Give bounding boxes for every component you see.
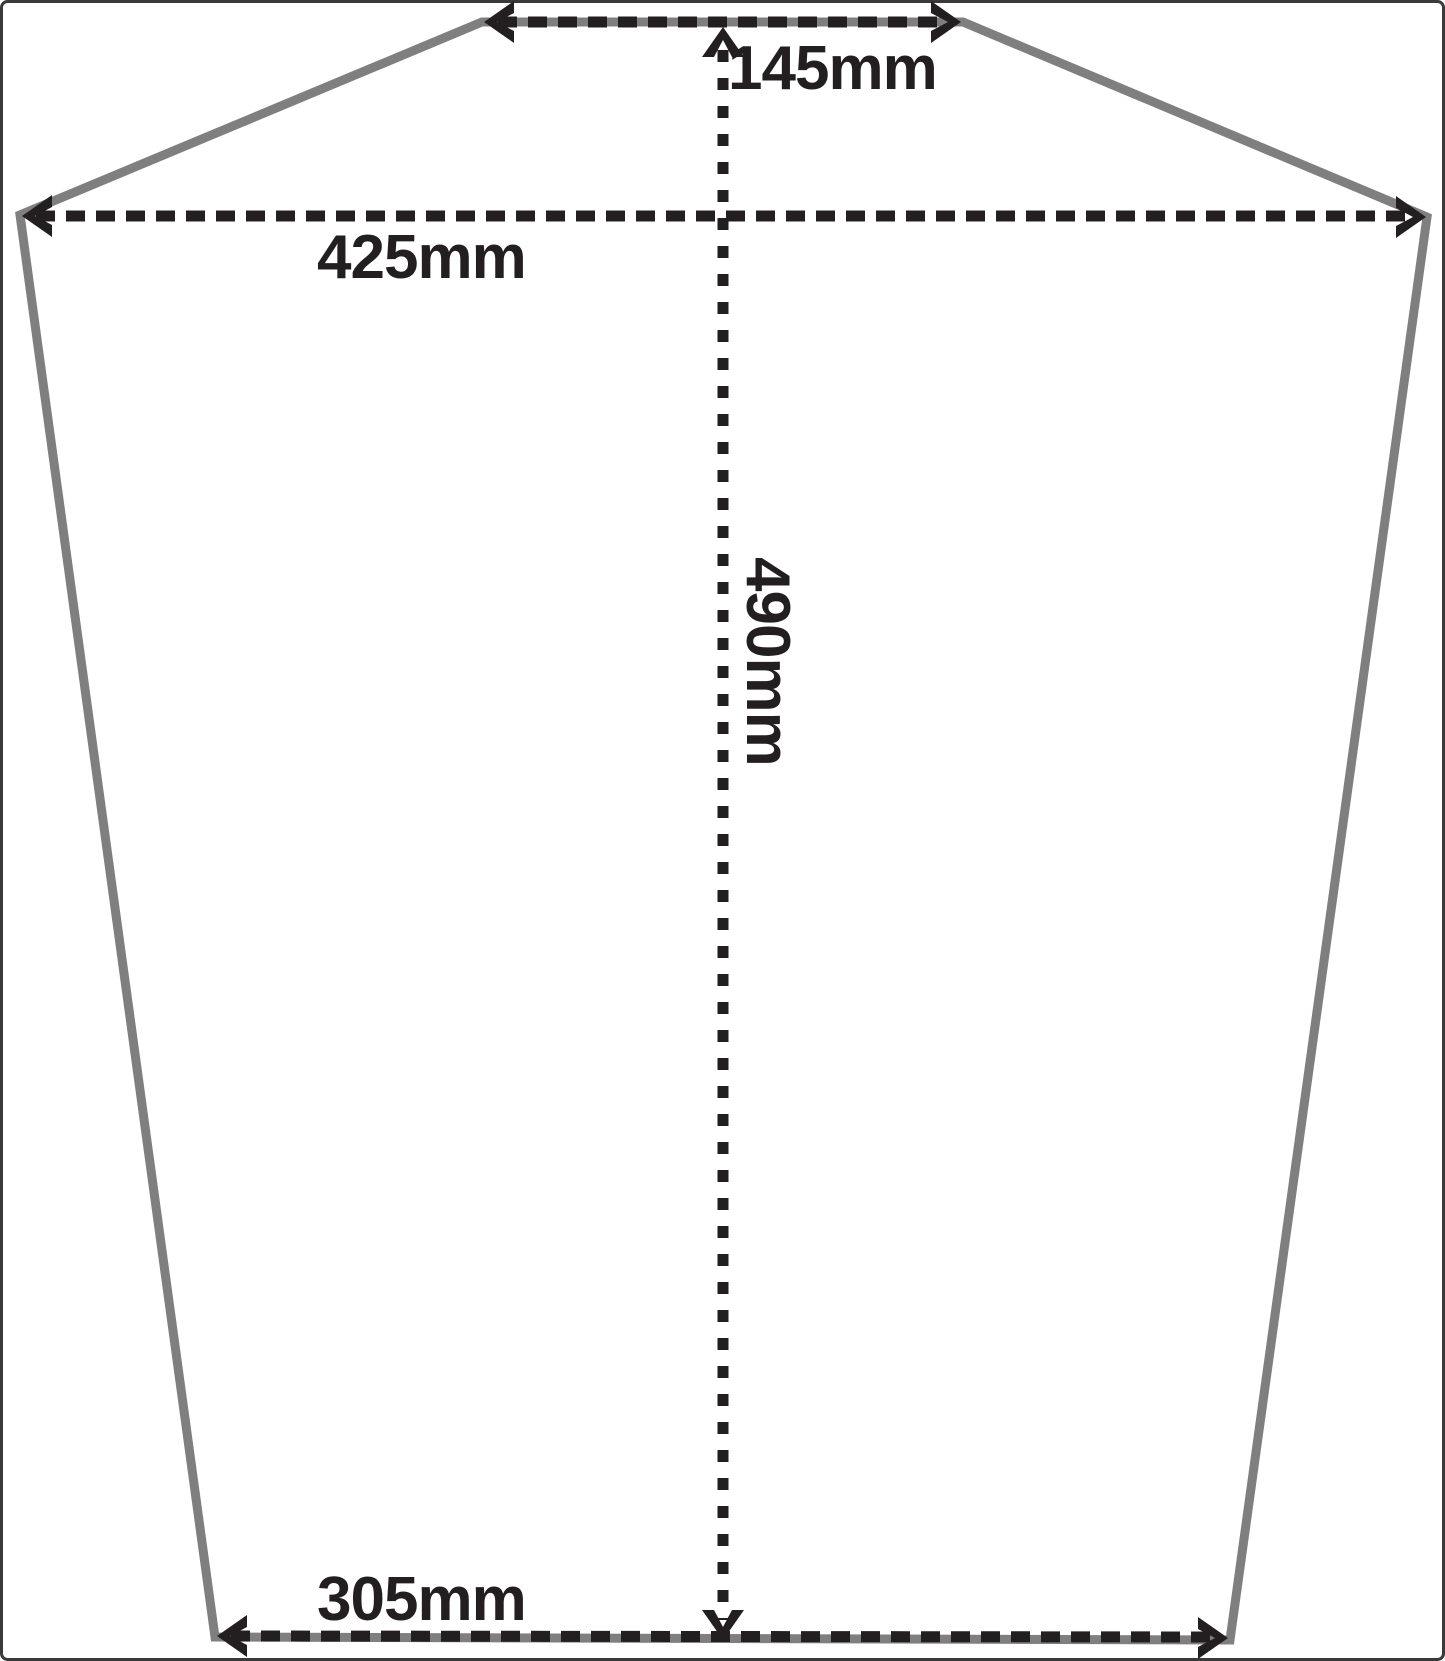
dimension-label-height: 490mm [733, 557, 802, 766]
dimension-label-bottom-edge: 305mm [317, 1565, 526, 1634]
dimension-label-top-edge: 145mm [728, 34, 937, 103]
dimension-label-upper-width: 425mm [317, 223, 526, 292]
pattern-diagram: 145mm 425mm 490mm 305mm [0, 0, 1445, 1661]
pattern-diagram-canvas: 145mm 425mm 490mm 305mm [0, 0, 1445, 1661]
